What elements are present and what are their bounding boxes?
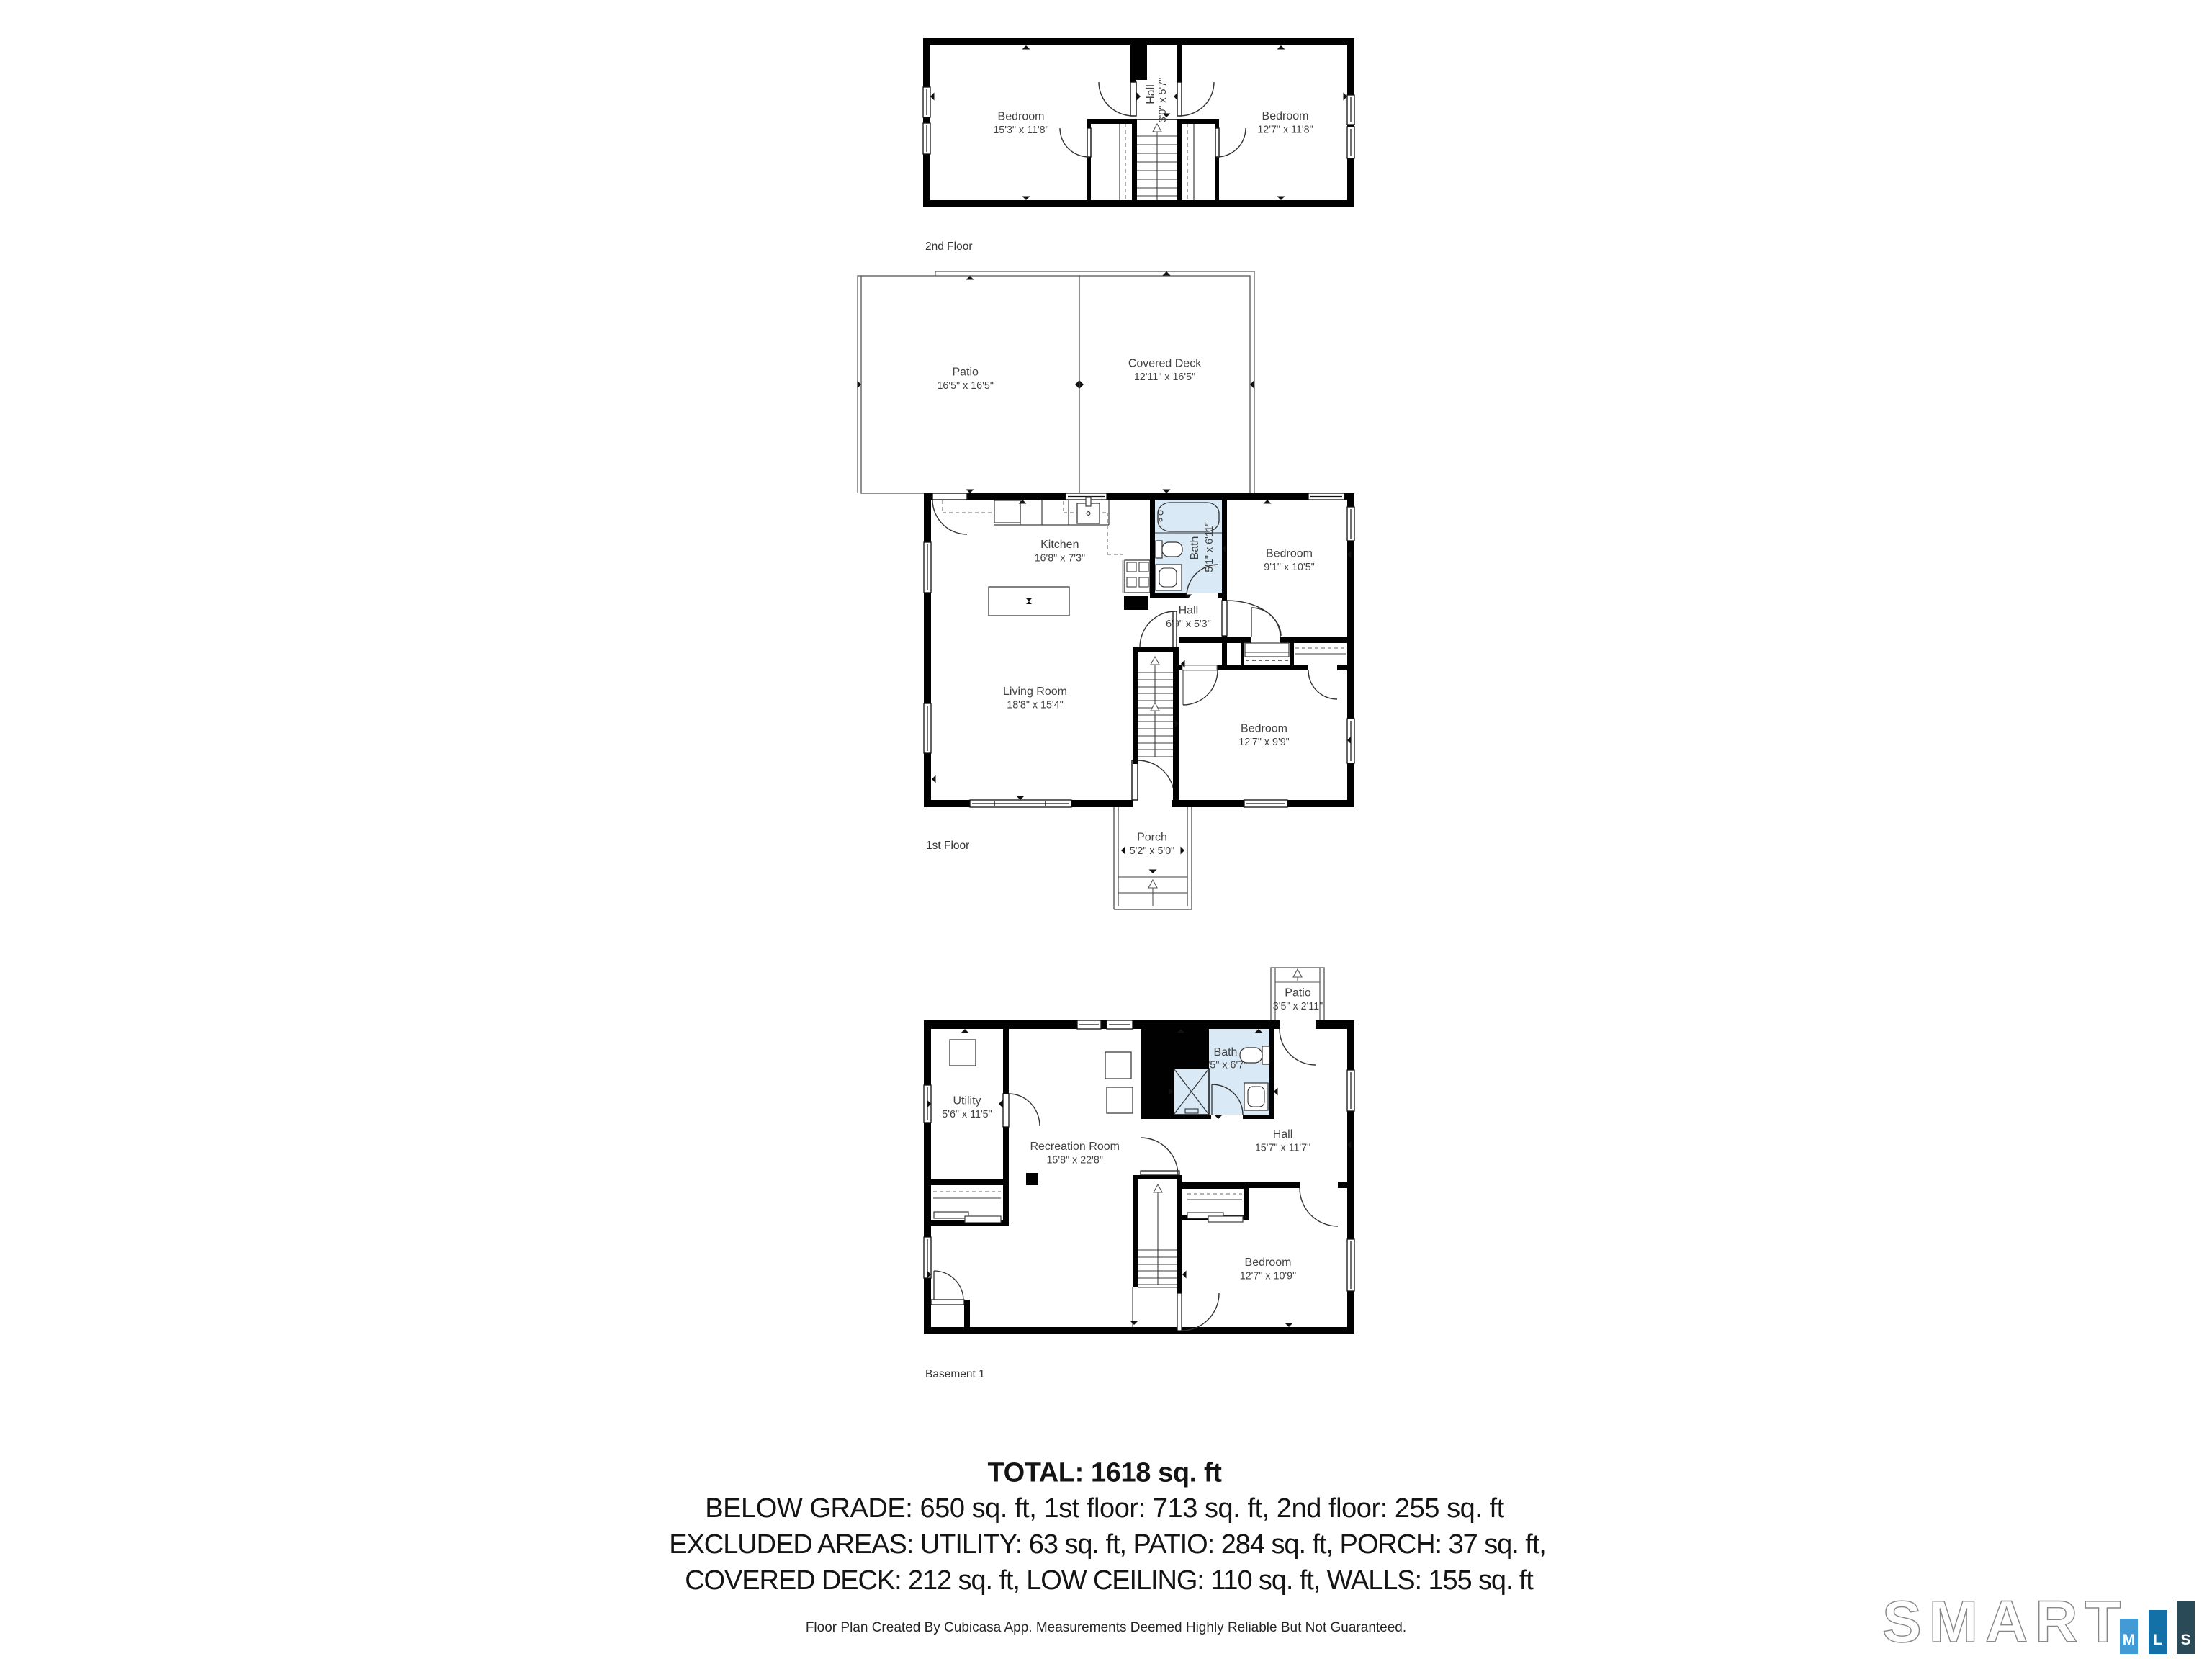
svg-text:12'11" x 16'5": 12'11" x 16'5" <box>1134 372 1195 383</box>
svg-text:12'7" x 10'9": 12'7" x 10'9" <box>1240 1271 1296 1282</box>
svg-text:5'5" x 6'7": 5'5" x 6'7" <box>1202 1060 1248 1071</box>
svg-text:Patio: Patio <box>952 367 979 379</box>
svg-text:15'8" x 22'8": 15'8" x 22'8" <box>1046 1155 1102 1166</box>
svg-text:18'8" x 15'4": 18'8" x 15'4" <box>1007 700 1063 711</box>
svg-text:Utility: Utility <box>953 1095 981 1107</box>
svg-text:15'7" x 11'7": 15'7" x 11'7" <box>1255 1143 1310 1154</box>
svg-text:SMART: SMART <box>1882 1589 2128 1655</box>
svg-text:Bedroom: Bedroom <box>998 111 1045 123</box>
svg-text:S: S <box>2180 1632 2190 1648</box>
svg-text:12'7" x 11'8": 12'7" x 11'8" <box>1257 125 1313 136</box>
svg-text:Kitchen: Kitchen <box>1040 539 1079 551</box>
svg-text:Bedroom: Bedroom <box>1245 1256 1292 1269</box>
svg-text:5'6" x 11'5": 5'6" x 11'5" <box>942 1109 992 1120</box>
svg-text:16'5" x 16'5": 16'5" x 16'5" <box>937 380 993 392</box>
svg-text:Patio: Patio <box>1285 987 1311 999</box>
svg-text:Recreation Room: Recreation Room <box>1030 1141 1120 1153</box>
svg-text:TOTAL: 1618 sq. ft: TOTAL: 1618 sq. ft <box>987 1458 1222 1488</box>
svg-text:Porch: Porch <box>1137 832 1167 844</box>
svg-text:Bedroom: Bedroom <box>1262 110 1309 122</box>
svg-text:Hall: Hall <box>1179 605 1199 617</box>
svg-text:1st Floor: 1st Floor <box>926 840 969 852</box>
svg-text:12'7" x 9'9": 12'7" x 9'9" <box>1238 737 1289 748</box>
svg-text:15'3" x 11'8": 15'3" x 11'8" <box>993 125 1048 136</box>
svg-text:Basement 1: Basement 1 <box>925 1368 985 1380</box>
svg-text:Bath: Bath <box>1214 1046 1238 1058</box>
svg-text:Bedroom: Bedroom <box>1266 548 1313 560</box>
svg-text:M: M <box>2123 1632 2136 1648</box>
svg-text:L: L <box>2153 1632 2162 1648</box>
svg-text:EXCLUDED AREAS: UTILITY: 63 sq: EXCLUDED AREAS: UTILITY: 63 sq. ft, PATI… <box>669 1529 1546 1560</box>
svg-text:5'2" x 5'0": 5'2" x 5'0" <box>1130 845 1175 857</box>
svg-text:9'1" x 10'5": 9'1" x 10'5" <box>1264 562 1314 573</box>
svg-text:Bath: Bath <box>1189 536 1201 560</box>
svg-text:COVERED DECK: 212 sq. ft, LOW: COVERED DECK: 212 sq. ft, LOW CEILING: 1… <box>685 1565 1534 1596</box>
svg-text:BELOW GRADE: 650 sq. ft, 1st f: BELOW GRADE: 650 sq. ft, 1st floor: 713 … <box>705 1493 1504 1524</box>
svg-text:Covered Deck: Covered Deck <box>1128 358 1202 370</box>
svg-text:16'8" x 7'3": 16'8" x 7'3" <box>1035 553 1085 565</box>
svg-text:2nd Floor: 2nd Floor <box>925 240 972 253</box>
svg-text:5'1" x 6'11": 5'1" x 6'11" <box>1204 522 1215 572</box>
svg-text:Hall: Hall <box>1273 1128 1293 1141</box>
svg-text:3'5" x 2'11": 3'5" x 2'11" <box>1273 1001 1323 1012</box>
svg-text:Hall: Hall <box>1145 84 1157 104</box>
svg-text:Living Room: Living Room <box>1003 685 1067 698</box>
svg-text:Floor Plan Created By Cubicasa: Floor Plan Created By Cubicasa App. Meas… <box>806 1620 1406 1635</box>
svg-text:Bedroom: Bedroom <box>1241 723 1287 735</box>
